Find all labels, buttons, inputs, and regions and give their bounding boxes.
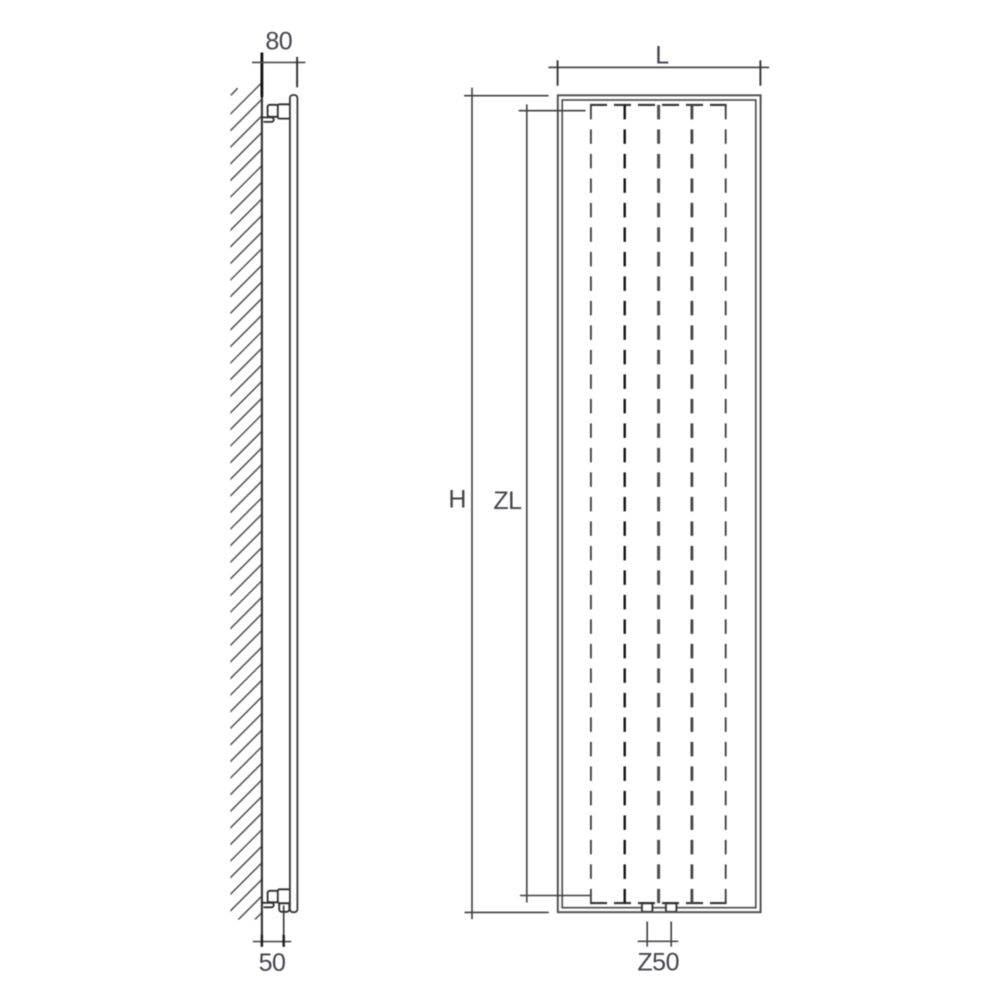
svg-text:L: L: [655, 41, 669, 69]
svg-text:ZL: ZL: [493, 487, 522, 515]
svg-text:50: 50: [259, 949, 286, 977]
svg-text:Z50: Z50: [637, 948, 679, 976]
svg-text:H: H: [448, 486, 466, 514]
svg-text:80: 80: [265, 27, 292, 55]
